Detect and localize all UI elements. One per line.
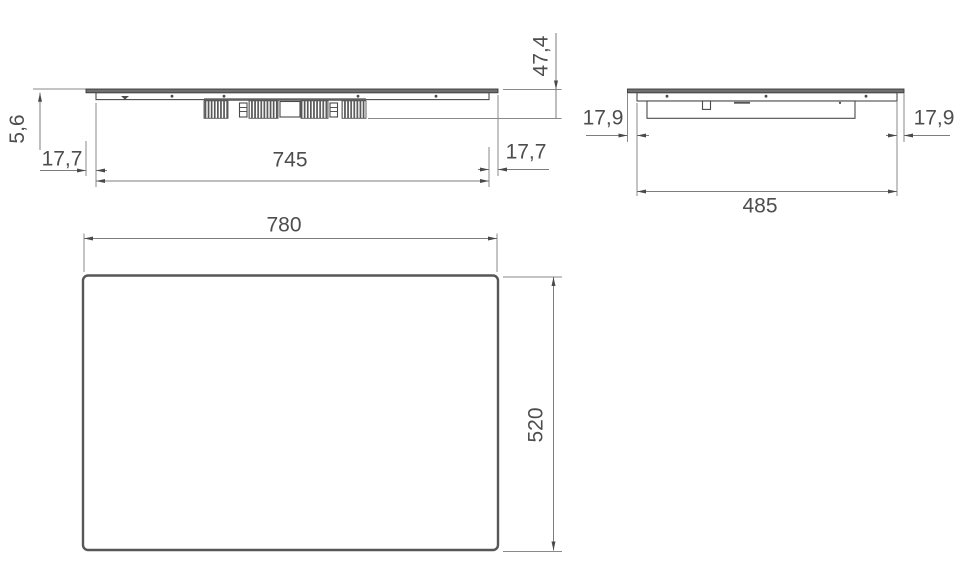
dim-label-total-height: 47,4 xyxy=(530,35,553,76)
dim-label-overhang-left-side: 17,9 xyxy=(583,107,624,130)
dim-label-overhang-left-front: 17,7 xyxy=(42,148,83,171)
arrowhead-right xyxy=(480,168,489,172)
glass-panel-side xyxy=(628,89,905,93)
screw-dot xyxy=(171,95,174,98)
dimension-overhang-right-side: 17,9 xyxy=(886,93,954,196)
arrowhead-left xyxy=(904,134,913,138)
arrowhead-up xyxy=(38,93,42,102)
dim-label-glass-thickness: 5,6 xyxy=(6,114,29,143)
dimension-overhang-left-front: 17,7 xyxy=(40,103,107,187)
screw-dot xyxy=(666,95,669,98)
arrowhead-left xyxy=(84,237,93,241)
screw-dot xyxy=(865,95,868,98)
heatsink-fin-block xyxy=(249,101,278,119)
dimension-glass-thickness: 5,6 xyxy=(6,93,42,150)
dimension-drawing: 5,6 47,4 17,7 745 xyxy=(0,0,958,570)
heatsink-fin-block xyxy=(301,101,328,119)
dimension-overhang-left-side: 17,9 xyxy=(583,93,649,196)
bracket-right xyxy=(330,103,338,117)
screw-dot xyxy=(357,95,360,98)
dim-label-body-depth: 485 xyxy=(742,195,777,218)
dim-label-body-width: 745 xyxy=(272,149,307,172)
dim-label-overall-width: 780 xyxy=(266,214,301,237)
arrowhead-right xyxy=(488,237,497,241)
connector-tab xyxy=(703,101,711,109)
arrowhead-right xyxy=(480,179,489,183)
dimension-body-depth: 485 xyxy=(637,190,897,218)
front-view: 5,6 47,4 17,7 745 xyxy=(6,33,562,187)
glass-panel-front xyxy=(86,89,498,93)
arrowhead-up xyxy=(552,277,556,286)
arrowhead-left xyxy=(96,169,105,173)
dim-label-overhang-right-front: 17,7 xyxy=(506,141,547,164)
arrowhead-down xyxy=(552,542,556,551)
dim-label-overhang-right-side: 17,9 xyxy=(914,107,955,130)
arrowhead-right xyxy=(619,134,628,138)
arrowhead-left xyxy=(498,168,507,172)
screw-dot xyxy=(223,95,226,98)
arrowhead-left xyxy=(637,190,646,194)
glass-outline-top-view xyxy=(83,276,498,551)
heatsink-fin-block xyxy=(204,101,228,119)
dimension-total-height: 47,4 xyxy=(368,33,562,119)
screw-dot xyxy=(839,102,841,104)
arrowhead-down xyxy=(554,81,558,90)
technical-drawing-canvas: 5,6 47,4 17,7 745 xyxy=(0,0,958,570)
arrowhead-left xyxy=(637,134,646,138)
screw-dot xyxy=(765,95,768,98)
arrowhead-right xyxy=(888,134,897,138)
top-view: 780 520 xyxy=(83,214,562,552)
heatsink-assembly xyxy=(204,98,366,118)
arrowhead-left xyxy=(96,179,105,183)
dimension-overall-depth: 520 xyxy=(503,277,562,552)
bracket-left xyxy=(240,103,248,117)
side-view: 17,9 17,9 485 xyxy=(583,89,955,218)
dimension-body-width: 745 xyxy=(96,147,489,187)
lower-housing-side xyxy=(647,101,855,118)
arrowhead-right xyxy=(888,190,897,194)
component-box xyxy=(280,102,300,118)
heatsink-fin-block xyxy=(342,101,366,119)
dimension-overall-width: 780 xyxy=(84,214,497,273)
screw-dot xyxy=(435,95,438,98)
dim-label-overall-depth: 520 xyxy=(525,407,548,442)
